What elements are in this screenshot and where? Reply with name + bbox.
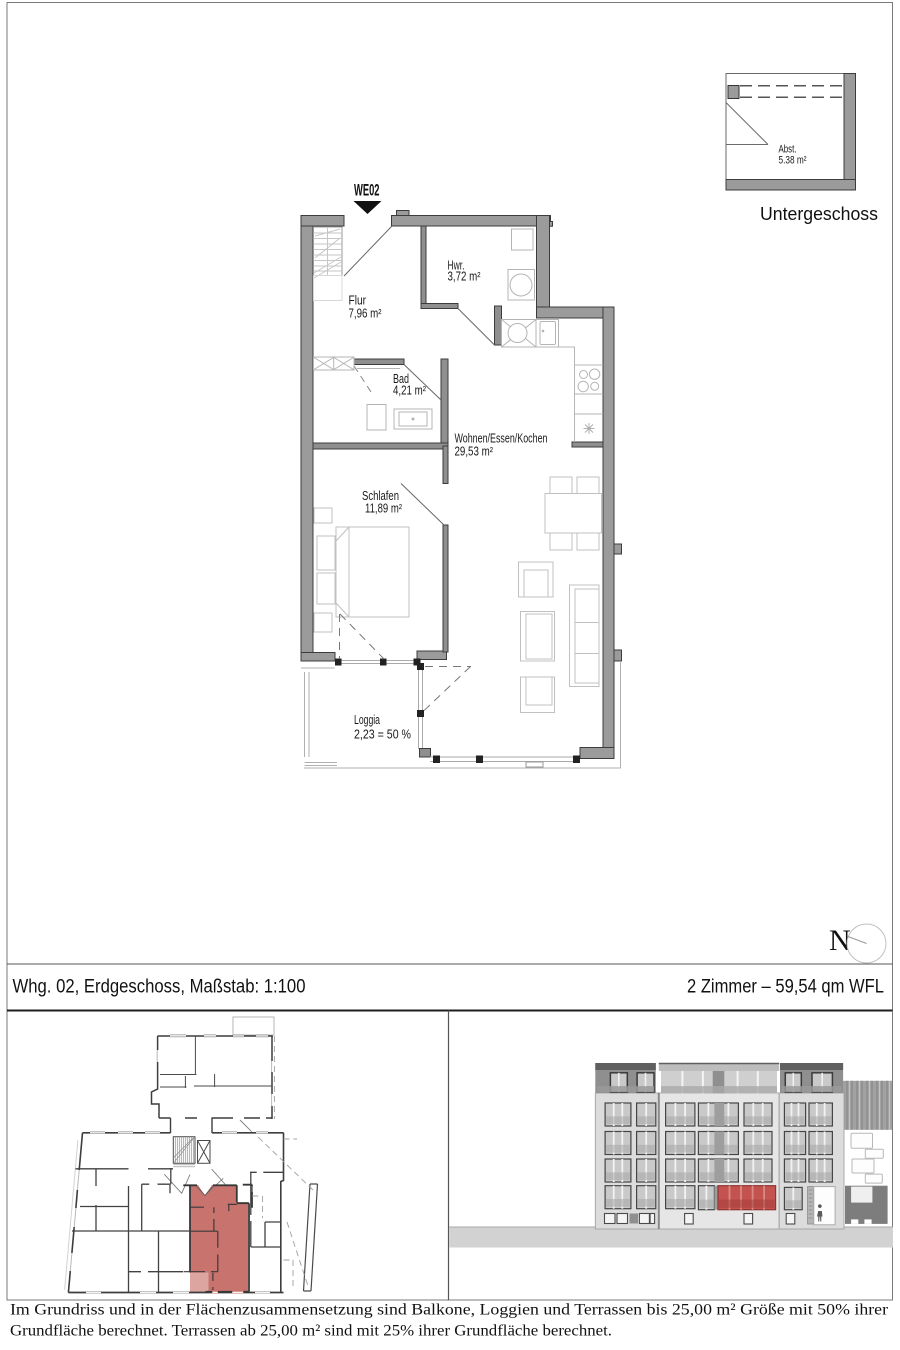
svg-text:3,72 m²: 3,72 m²: [448, 269, 481, 284]
svg-text:4,21 m²: 4,21 m²: [393, 383, 426, 398]
svg-text:Loggia: Loggia: [354, 712, 381, 727]
svg-text:2,23 = 50 %: 2,23 = 50 %: [354, 727, 411, 742]
svg-text:29,53 m²: 29,53 m²: [455, 444, 494, 459]
svg-text:Untergeschoss: Untergeschoss: [760, 203, 878, 224]
svg-text:7,96 m²: 7,96 m²: [349, 306, 382, 321]
svg-text:5.38 m²: 5.38 m²: [779, 155, 807, 167]
svg-text:Whg. 02, Erdgeschoss, Maßstab:: Whg. 02, Erdgeschoss, Maßstab: 1:100: [13, 977, 306, 998]
svg-text:WE02: WE02: [354, 181, 380, 200]
svg-text:Grundfläche berechnet. Terrass: Grundfläche berechnet. Terrassen ab 25,0…: [10, 1323, 612, 1340]
svg-text:11,89 m²: 11,89 m²: [365, 501, 402, 516]
svg-text:2 Zimmer – 59,54 qm WFL: 2 Zimmer – 59,54 qm WFL: [687, 977, 884, 998]
svg-text:Im Grundriss und in der Fläche: Im Grundriss und in der Flächenzusammens…: [10, 1302, 889, 1319]
